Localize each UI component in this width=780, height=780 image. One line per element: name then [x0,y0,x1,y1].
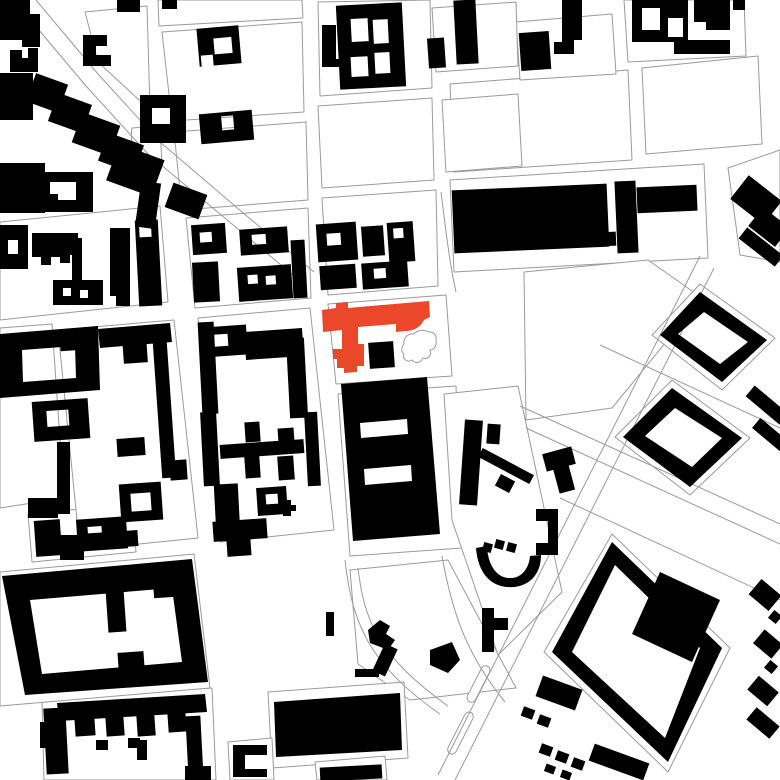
building-footprint [336,2,406,89]
building-footprint [226,539,251,557]
building-footprint [453,0,478,65]
building-footprint [185,766,211,780]
building-footprint [60,535,84,560]
building-footprint [614,181,638,254]
building-footprint [117,651,144,669]
building-footprint [59,331,98,352]
figure-ground-map [0,0,780,780]
city-block-outline [158,0,303,26]
building-footprint [53,280,103,305]
building-footprint [277,455,295,480]
building-footprint [192,261,220,302]
building-footprint [746,707,779,739]
building-footprint [0,196,30,210]
building-footprint [32,398,91,442]
building-footprint [326,612,334,636]
building-footprint [57,442,70,514]
city-block-outline [318,98,434,188]
building-footprint [555,750,570,764]
building-footprint [117,0,140,12]
building-footprint [72,238,82,286]
building-footprint [162,0,177,9]
building-footprint [560,770,572,780]
building-footprint [539,743,554,757]
building-footprint [169,459,187,480]
building-footprint [452,184,610,254]
city-block-outline [442,94,522,172]
building-footprint [106,589,127,632]
building-footprint [28,498,58,518]
building-footprint [752,418,780,451]
building-footprint [274,693,402,757]
building-footprint [753,629,780,658]
building-footprint [600,232,617,247]
building-footprint [122,336,148,364]
building-footprint [544,764,556,775]
building-footprint [110,228,130,306]
building-footprint [519,31,552,71]
building-footprint [427,37,446,68]
city-block-outline [642,56,762,154]
building-footprint [764,660,778,674]
building-footprint [278,427,295,442]
building-footprint [167,711,186,732]
building-footprint [749,579,780,611]
building-footprint [40,722,52,748]
building-footprint [636,185,697,214]
building-footprint [387,221,416,263]
building-footprint [553,464,575,493]
building-footprint [537,714,552,728]
building-footprint [199,110,254,145]
building-footprint [368,341,395,369]
building-footprint [116,437,145,457]
building-footprint [355,669,379,677]
building-footprint [36,194,58,206]
building-footprint [34,519,62,557]
building-footprint [733,0,745,10]
building-footprint [0,0,40,47]
building-footprint [589,744,650,780]
building-footprint [244,422,260,443]
building-footprint [361,225,385,256]
building-footprint [486,424,500,445]
building-footprint [319,264,357,290]
building-footprint [768,610,780,624]
building-footprint [105,715,124,736]
building-footprint [746,385,780,424]
building-footprint [140,95,186,143]
building-footprint [137,740,147,760]
building-footprint [96,740,108,750]
building-footprint [244,456,260,479]
building-footprint [747,676,778,707]
building-footprint [571,757,586,771]
building-footprint [237,264,293,302]
building-footprint [521,706,536,720]
building-footprint [341,377,440,541]
building-footprint [212,518,267,542]
building-footprint [136,713,155,736]
site-plan-svg [0,0,780,780]
building-footprint [10,48,38,72]
building-footprint [74,717,95,736]
